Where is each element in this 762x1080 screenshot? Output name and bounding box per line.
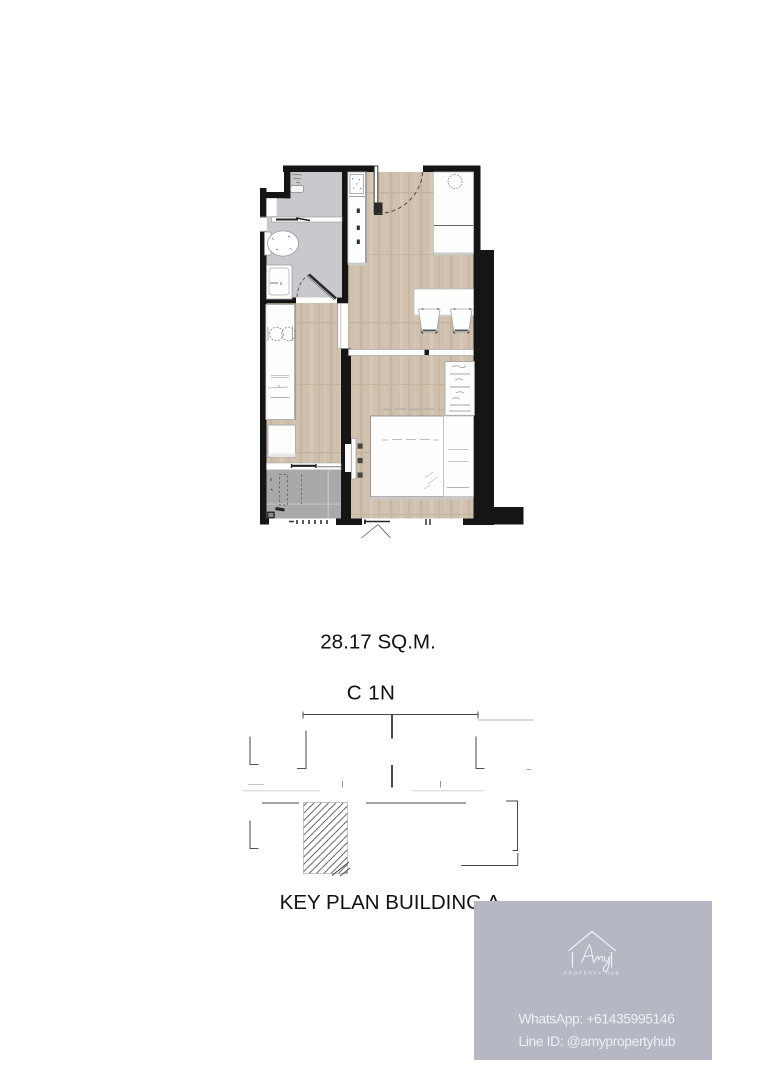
svg-text:C 1N: C 1N <box>347 682 396 705</box>
svg-text:Line ID: @amypropertyhub: Line ID: @amypropertyhub <box>519 1034 676 1049</box>
svg-text:PROPERTY HUB: PROPERTY HUB <box>564 971 620 976</box>
svg-text:KEY PLAN BUILDING A: KEY PLAN BUILDING A <box>280 891 501 914</box>
svg-text:WhatsApp: +61435995146: WhatsApp: +61435995146 <box>519 1012 676 1027</box>
svg-text:28.17 SQ.M.: 28.17 SQ.M. <box>320 631 436 654</box>
